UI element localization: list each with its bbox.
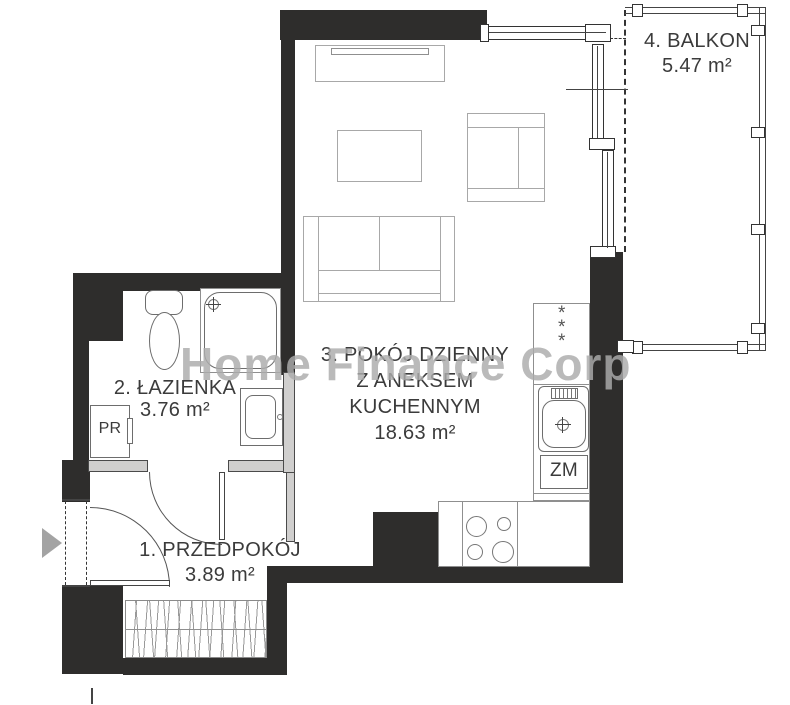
wall-hall-left-lower xyxy=(62,586,123,674)
counter-divider xyxy=(533,493,590,494)
balcony-door-panel-1 xyxy=(592,44,604,140)
sink-drain-cross-v xyxy=(562,417,563,433)
hob-burner xyxy=(466,516,487,537)
section-mark-line xyxy=(566,89,628,90)
room-area: 3.76 m² xyxy=(95,399,255,421)
kitchen-counter-bottom xyxy=(438,501,590,567)
hob-burner xyxy=(467,544,483,560)
balcony-boundary-dashed xyxy=(624,10,626,252)
balcony-railing-post xyxy=(751,323,765,334)
armchair-line xyxy=(467,127,545,128)
balcony-door-panel-2-mullion xyxy=(607,152,608,248)
sofa-line xyxy=(440,216,441,302)
balcony-railing-post xyxy=(632,4,643,17)
window-top-mullion xyxy=(489,32,606,33)
sink-drain-cross-h xyxy=(555,424,571,425)
entrance-opening-dashed xyxy=(86,501,87,585)
window-jamb-corner xyxy=(585,24,611,42)
balcony-railing-post xyxy=(737,4,748,17)
entrance-cut-bottom xyxy=(62,585,90,587)
room-name: KUCHENNYM xyxy=(315,394,515,420)
entrance-opening-dashed xyxy=(65,501,66,585)
sofa-line xyxy=(318,216,319,302)
room-area: 18.63 m² xyxy=(315,420,515,446)
washing-machine-label: PR xyxy=(90,420,130,438)
coffee-table xyxy=(337,130,422,182)
counter-divider xyxy=(517,501,518,567)
room-area: 5.47 m² xyxy=(627,54,767,79)
floor-plan: * * * ZM PR xyxy=(0,0,790,705)
wall-hall-bottom xyxy=(123,658,287,675)
armchair-line xyxy=(467,188,545,189)
wall-bottom-right xyxy=(267,566,623,583)
wall-living-left xyxy=(281,10,295,375)
wall-hall-left-upper xyxy=(62,460,90,502)
balcony-railing-post xyxy=(751,224,765,235)
dimension-tick xyxy=(91,688,93,704)
sofa-line xyxy=(379,216,380,270)
wall-riser-block xyxy=(373,512,438,567)
watermark: Home Finance Corp xyxy=(180,341,632,387)
balcony-door-jamb-mid xyxy=(589,138,615,150)
sofa-line xyxy=(318,270,440,271)
washbasin-faucet xyxy=(277,414,283,420)
window-jamb-left xyxy=(480,24,489,42)
partition-hall-east xyxy=(286,472,295,542)
hob-burner xyxy=(497,517,511,531)
room-name: 4. BALKON xyxy=(627,29,767,54)
counter-divider xyxy=(462,501,463,567)
entrance-cut-top xyxy=(62,499,90,501)
room-name: 1. PRZEDPOKÓJ xyxy=(120,538,320,563)
wall-bathroom-left xyxy=(73,290,89,462)
room-label-hall: 1. PRZEDPOKÓJ 3.89 m² xyxy=(120,538,320,588)
sofa-line xyxy=(318,293,440,294)
tv xyxy=(331,48,429,55)
balcony-railing-post xyxy=(751,127,765,138)
partition-bath-south-left xyxy=(88,460,148,472)
room-label-balcony: 4. BALKON 5.47 m² xyxy=(627,29,767,79)
balcony-door-panel-2 xyxy=(602,150,614,250)
shower-drain-cross-v xyxy=(213,297,214,312)
toilet-bowl xyxy=(149,312,180,370)
sink-drain xyxy=(557,419,569,431)
hob-burner xyxy=(492,541,514,563)
dishwasher-label: ZM xyxy=(540,461,588,481)
bathroom-door-swing xyxy=(149,472,222,545)
wardrobe-shelf-line xyxy=(125,629,267,630)
balcony-door-panel-1-mullion xyxy=(597,46,598,138)
room-area: 3.89 m² xyxy=(120,563,320,588)
balcony-railing-post xyxy=(737,341,748,354)
wall-right xyxy=(590,252,623,583)
armchair-line xyxy=(518,127,519,188)
wall-top xyxy=(280,10,487,40)
balcony-door-jamb-bottom xyxy=(590,246,616,258)
entrance-arrow-icon xyxy=(42,528,62,558)
